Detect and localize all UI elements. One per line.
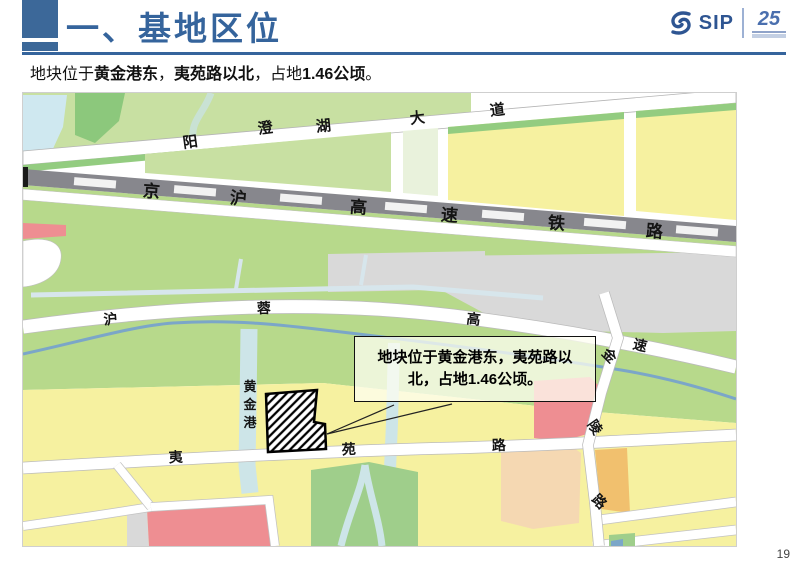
map-label-jinghu-railway: 高 (349, 196, 368, 217)
subtitle-text: 地块位于黄金港东，夷苑路以北，占地1.46公顷。 (30, 60, 381, 84)
map-label-yangchenghu-avenue: 阳 (182, 133, 199, 152)
map-label-yiyuan-road: 路 (492, 437, 508, 454)
subtitle-segment: 地块位于 (30, 66, 94, 83)
page-title: 一、基地区位 (66, 2, 282, 50)
map-label-yiyuan-road: 夷 (167, 449, 184, 466)
map-label-huangjingang-canal: 金 (242, 397, 257, 412)
title-decoration-bar (22, 42, 58, 51)
sip-swirl-icon (668, 10, 694, 36)
anniversary-number: 25 (758, 9, 780, 29)
map-canvas: 阳澄湖大道京沪高速铁路沪蓉高速金陵路夷苑路黄金港 (23, 93, 736, 546)
map-label-jinghu-railway: 沪 (229, 187, 248, 208)
logo-divider (742, 8, 744, 38)
subtitle-segment: 。 (365, 66, 381, 83)
map-label-yangchenghu-avenue: 道 (489, 100, 506, 120)
anniversary-small-text-line1 (752, 31, 786, 33)
page-number: 19 (777, 547, 790, 561)
map-label-jinghu-railway: 铁 (547, 212, 566, 233)
header-rule (22, 52, 786, 55)
sip-logo: SIP 25 (668, 8, 786, 38)
green-patch-south (311, 462, 418, 546)
map-label-huangjingang-canal: 黄 (243, 379, 256, 394)
map-label-huangjingang-canal: 港 (243, 415, 257, 430)
map-label-hurong-expressway: 沪 (103, 310, 118, 327)
site-location-map: 阳澄湖大道京沪高速铁路沪蓉高速金陵路夷苑路黄金港 地块位于黄金港东，夷苑路以北，… (22, 92, 737, 547)
subtitle-segment: 黄金港东 (94, 66, 158, 83)
site-callout-box: 地块位于黄金港东，夷苑路以北，占地1.46公顷。 (354, 336, 596, 402)
subtitle-segment: ， (158, 66, 174, 83)
map-label-hurong-expressway: 蓉 (257, 300, 273, 317)
map-label-jinghu-railway: 速 (440, 204, 459, 225)
subtitle-segment: 1.46公顷 (302, 66, 365, 83)
sip-logo-text: SIP (699, 12, 734, 35)
anniversary-25-badge: 25 (752, 9, 786, 38)
anniversary-small-text-line2 (752, 34, 786, 38)
map-label-yiyuan-road: 苑 (340, 441, 356, 458)
subtitle-segment: 夷苑路以北 (174, 66, 254, 83)
title-decoration-square (22, 0, 58, 38)
subtitle-segment: ，占地 (254, 66, 302, 83)
map-label-jinghu-railway: 京 (142, 180, 161, 201)
map-label-yangchenghu-avenue: 大 (409, 108, 426, 128)
map-label-jinghu-railway: 路 (645, 220, 665, 241)
map-label-hurong-expressway: 高 (466, 310, 482, 328)
slide: { "slide": { "title": "一、基地区位", "page_nu… (0, 0, 800, 565)
map-label-yangchenghu-avenue: 湖 (315, 117, 332, 135)
